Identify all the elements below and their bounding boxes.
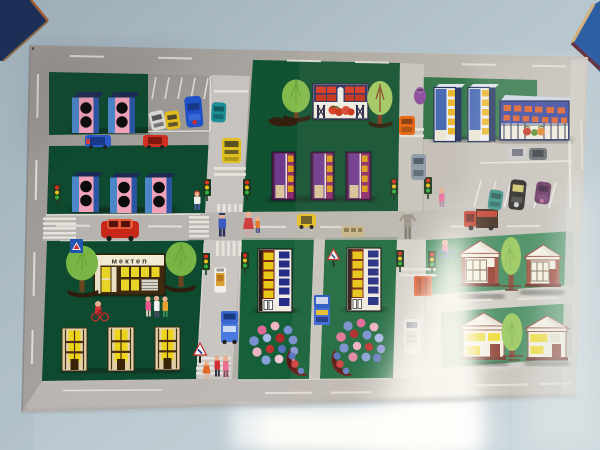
svg-text:мектеп: мектеп [112, 256, 149, 265]
